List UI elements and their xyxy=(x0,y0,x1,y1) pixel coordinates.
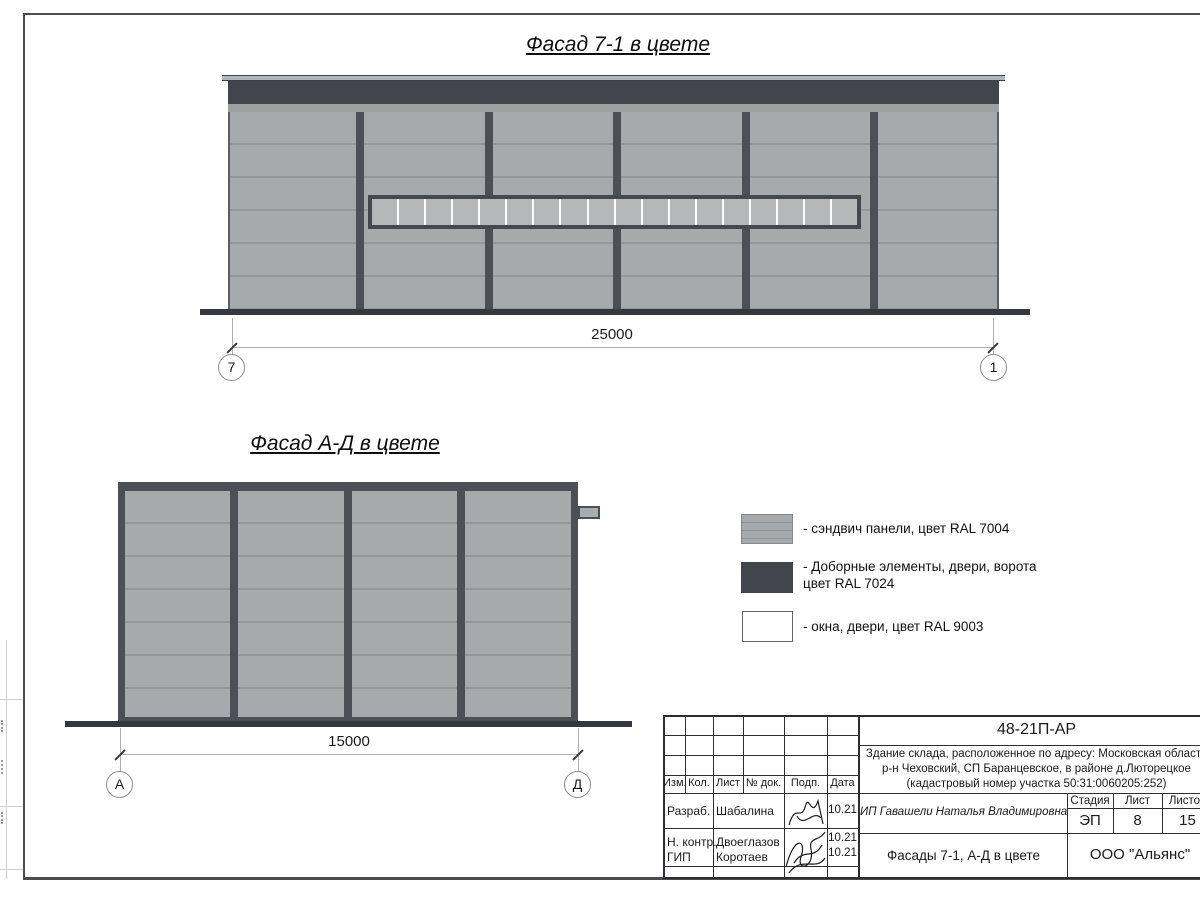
signer-role: Н. контр. xyxy=(667,835,717,849)
title-block-line xyxy=(665,735,858,736)
window-pane xyxy=(589,199,614,225)
axis-marker-7: 7 xyxy=(218,354,245,381)
title-block-line xyxy=(665,828,858,829)
signer-name: Коротаев xyxy=(716,850,768,864)
window-pane xyxy=(507,199,532,225)
signer-date: 10.21 xyxy=(827,847,858,859)
left-margin-stamp xyxy=(0,640,23,879)
sheet-frame-top xyxy=(23,13,1200,15)
window-pane xyxy=(805,199,830,225)
title-block-border xyxy=(663,877,1200,879)
extension-line xyxy=(578,728,579,772)
window-pane xyxy=(832,199,857,225)
title-block-line xyxy=(665,866,858,867)
rev-header-kol: Кол. xyxy=(685,777,713,789)
mullion xyxy=(356,112,364,309)
window-pane xyxy=(480,199,505,225)
window-pane xyxy=(724,199,749,225)
mullion xyxy=(230,491,238,717)
window-pane xyxy=(534,199,559,225)
extension-line xyxy=(120,728,121,772)
axis-marker-a: А xyxy=(106,771,133,798)
window-pane xyxy=(372,199,397,225)
ground-line xyxy=(200,309,1030,315)
rev-header-izm: Изм. xyxy=(663,777,685,789)
stamp-text-fragment xyxy=(1,760,3,774)
stamp-text-fragment xyxy=(1,812,3,824)
legend-label-windows: - окна, двери, цвет RAL 9003 xyxy=(803,619,983,634)
sheet-number: 8 xyxy=(1113,812,1162,829)
window-pane xyxy=(751,199,776,225)
window-pane xyxy=(453,199,478,225)
stamp-line xyxy=(0,806,23,807)
stamp-text-fragment xyxy=(1,720,3,732)
sheets-total: 15 xyxy=(1162,812,1200,829)
rev-header-doc: № док. xyxy=(743,777,784,789)
legend-swatch-panels xyxy=(741,514,793,544)
window-pane xyxy=(561,199,586,225)
window-pane xyxy=(399,199,424,225)
window-pane xyxy=(778,199,803,225)
signer-date: 10.21 xyxy=(827,832,858,844)
drawing-title: Фасады 7-1, А-Д в цвете xyxy=(860,848,1067,863)
window-strip xyxy=(368,195,861,229)
signer-role: Разраб. xyxy=(667,804,710,818)
stamp-line xyxy=(6,640,7,879)
side-protrusion xyxy=(578,506,600,519)
stage-label: Стадия xyxy=(1067,795,1113,807)
dimension-label: 25000 xyxy=(562,326,662,343)
dimension-line xyxy=(232,347,993,348)
signer-name: Двоеглазов xyxy=(716,835,780,849)
legend-swatch-windows xyxy=(742,611,793,642)
legend-label-panels: - сэндвич панели, цвет RAL 7004 xyxy=(803,521,1009,536)
legend-label-trim-line1: - Доборные элементы, двери, ворота xyxy=(803,559,1037,574)
axis-marker-d: Д xyxy=(564,771,591,798)
window-pane xyxy=(616,199,641,225)
dimension-label: 15000 xyxy=(299,733,399,750)
sheet-label: Лист xyxy=(1113,795,1162,807)
project-address-line1: Здание склада, расположенное по адресу: … xyxy=(860,748,1200,760)
window-strip-glazing xyxy=(372,199,857,225)
window-pane xyxy=(697,199,722,225)
mullion xyxy=(344,491,352,717)
facade-7-1-title: Фасад 7-1 в цвете xyxy=(418,33,818,57)
window-pane xyxy=(670,199,695,225)
facade-a-d-title: Фасад А-Д в цвете xyxy=(145,432,545,456)
title-block: Изм. Кол. Лист № док. Подп. Дата Разраб.… xyxy=(663,715,1200,879)
signature-scribble xyxy=(785,796,827,830)
dimension-line xyxy=(120,754,578,755)
rev-header-list: Лист xyxy=(713,777,743,789)
ground-line xyxy=(65,721,632,727)
stamp-line xyxy=(0,699,23,700)
signer-role: ГИП xyxy=(667,850,691,864)
company-name: ООО "Альянс" xyxy=(1067,846,1200,863)
title-block-line xyxy=(1067,808,1200,809)
signature-scribble xyxy=(780,827,828,877)
project-address-line2: р-н Чеховский, СП Баранцевское, в районе… xyxy=(860,763,1200,775)
title-block-line xyxy=(860,833,1200,834)
legend-label-trim-line2: цвет RAL 7024 xyxy=(803,576,894,591)
parapet-band xyxy=(228,81,999,104)
mullion xyxy=(457,491,465,717)
client-name: ИП Гавашели Наталья Владимировна xyxy=(860,806,1067,818)
title-block-line xyxy=(860,745,1200,746)
project-address-line3: (кадастровый номер участка 50:31:0060205… xyxy=(860,778,1200,790)
doc-number: 48-21П-АР xyxy=(860,721,1200,739)
title-block-line xyxy=(665,793,1200,794)
signer-date: 10.21 xyxy=(827,804,858,816)
sheets-label: Листов xyxy=(1162,795,1200,807)
window-pane xyxy=(426,199,451,225)
title-block-line xyxy=(665,755,858,756)
window-pane xyxy=(643,199,668,225)
mullion xyxy=(870,112,878,309)
stamp-line xyxy=(0,869,23,870)
axis-marker-1: 1 xyxy=(980,354,1007,381)
title-block-border xyxy=(663,715,665,879)
rev-header-data: Дата xyxy=(827,777,858,789)
sheet-frame-left xyxy=(23,13,25,879)
title-block-line xyxy=(713,717,714,877)
legend-swatch-trim xyxy=(741,562,793,593)
rev-header-podp: Подп. xyxy=(784,777,827,789)
title-block-line xyxy=(665,775,858,776)
stage-value: ЭП xyxy=(1067,812,1113,829)
facade-a-d-frame xyxy=(118,482,578,723)
signer-name: Шабалина xyxy=(716,804,774,818)
